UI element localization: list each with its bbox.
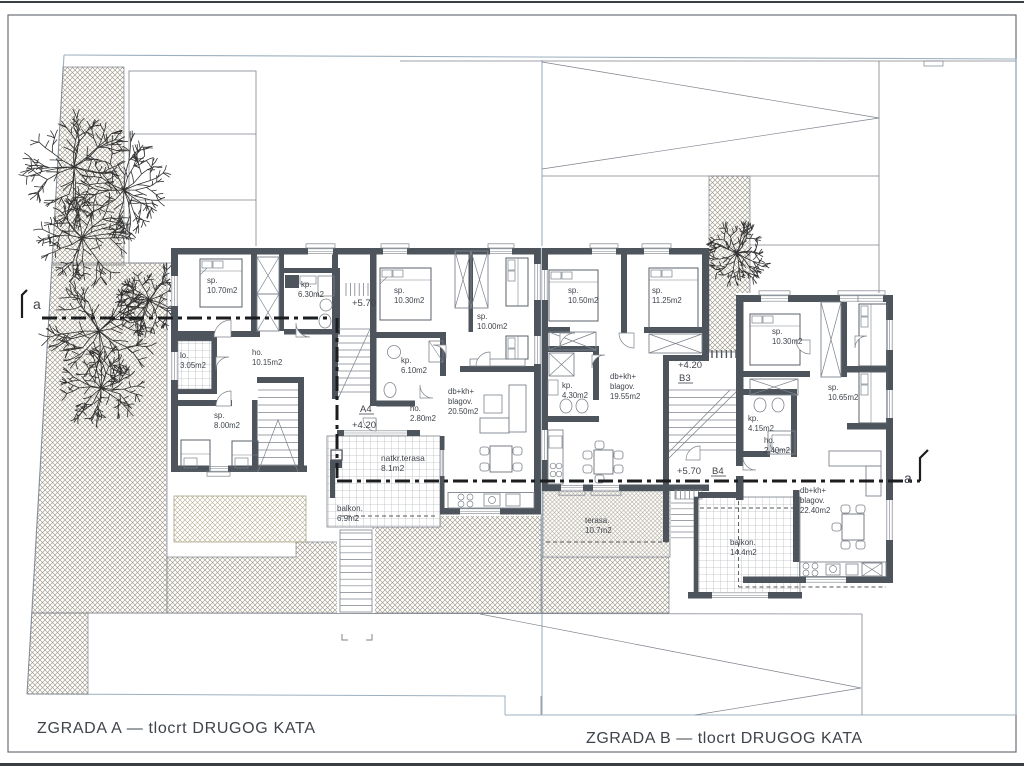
svg-text:ho.: ho. [764,436,775,445]
svg-text:14.4m2: 14.4m2 [730,548,757,557]
svg-text:B4: B4 [712,466,724,477]
svg-text:balkon.: balkon. [730,538,756,547]
svg-text:sp.: sp. [772,327,782,336]
svg-text:+4.20: +4.20 [352,420,376,431]
svg-text:2.80m2: 2.80m2 [410,414,436,423]
svg-text:a: a [33,296,41,312]
svg-text:10.65m2: 10.65m2 [828,393,858,402]
svg-text:20.50m2: 20.50m2 [448,407,478,416]
svg-text:10.00m2: 10.00m2 [477,322,507,331]
svg-text:blagov.: blagov. [448,397,473,406]
svg-text:sp.: sp. [828,383,838,392]
svg-text:sp.: sp. [394,286,404,295]
svg-text:kp.: kp. [748,414,758,423]
svg-text:6.9m2: 6.9m2 [337,514,360,523]
svg-text:blagov.: blagov. [800,496,825,505]
svg-text:+4.20: +4.20 [678,360,702,371]
svg-text:kp.: kp. [401,356,411,365]
svg-text:sp.: sp. [207,276,217,285]
svg-text:4.15m2: 4.15m2 [748,424,774,433]
svg-text:kp.: kp. [301,280,311,289]
svg-text:B3: B3 [679,373,691,384]
svg-text:10.70m2: 10.70m2 [207,286,237,295]
svg-text:balkon.: balkon. [337,504,363,513]
svg-text:db+kh+: db+kh+ [610,372,636,381]
svg-text:blagov.: blagov. [610,382,635,391]
svg-text:db+kh+: db+kh+ [448,387,474,396]
svg-text:sp.: sp. [477,312,487,321]
svg-text:sp.: sp. [214,411,224,420]
svg-text:8.1m2: 8.1m2 [381,463,405,473]
svg-text:ZGRADA B — tlocrt DRUGOG KATA: ZGRADA B — tlocrt DRUGOG KATA [586,730,862,747]
svg-text:ZGRADA A — tlocrt DRUGOG KATA: ZGRADA A — tlocrt DRUGOG KATA [37,720,315,737]
svg-text:ho.: ho. [410,404,421,413]
svg-text:sp.: sp. [652,286,662,295]
svg-text:10.50m2: 10.50m2 [568,296,598,305]
svg-text:sp.: sp. [568,286,578,295]
svg-text:a: a [904,470,912,486]
svg-text:lo.: lo. [180,351,188,360]
svg-text:natkr.terasa: natkr.terasa [381,453,425,463]
svg-text:10.15m2: 10.15m2 [252,358,282,367]
svg-text:11.25m2: 11.25m2 [652,296,682,305]
svg-text:10.30m2: 10.30m2 [772,337,802,346]
svg-text:terasa.: terasa. [585,516,609,525]
svg-text:6.10m2: 6.10m2 [401,366,427,375]
svg-text:3.05m2: 3.05m2 [180,361,206,370]
svg-text:10.30m2: 10.30m2 [394,296,424,305]
svg-text:8.00m2: 8.00m2 [214,421,240,430]
svg-text:10.7m2: 10.7m2 [585,526,612,535]
svg-text:ho.: ho. [252,348,263,357]
svg-text:2.40m2: 2.40m2 [764,446,790,455]
svg-text:+5.70: +5.70 [352,298,376,309]
svg-text:db+kh+: db+kh+ [800,486,826,495]
svg-text:kp.: kp. [562,381,572,390]
svg-text:+5.70: +5.70 [677,466,701,477]
svg-text:22.40m2: 22.40m2 [800,506,830,515]
svg-text:19.55m2: 19.55m2 [610,392,640,401]
svg-text:4.30m2: 4.30m2 [562,391,588,400]
svg-text:6.30m2: 6.30m2 [298,290,324,299]
svg-text:A4: A4 [360,404,372,415]
